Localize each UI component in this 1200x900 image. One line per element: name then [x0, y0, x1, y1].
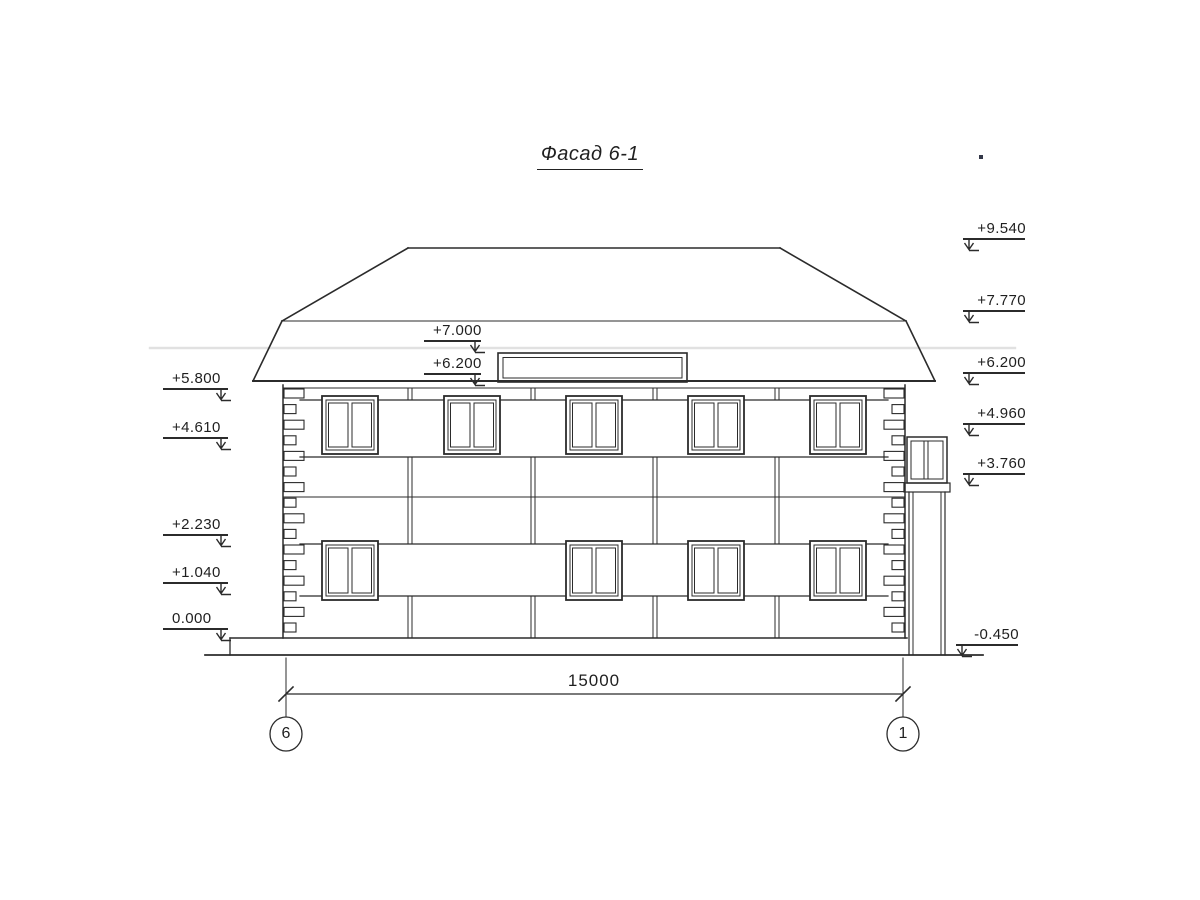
- level-arrow-icon: [961, 311, 981, 325]
- elevation-mark: +1.040: [163, 565, 229, 599]
- level-arrow-icon: [467, 341, 487, 355]
- quoin-brick: [284, 623, 296, 632]
- level-arrow-icon: [954, 645, 974, 659]
- level-arrow-icon: [961, 424, 981, 438]
- blueprint-page: Фасад 6-1 15000 6 1 +5.800 +4.610 +2.230…: [0, 0, 1200, 900]
- window: [322, 541, 378, 600]
- elevation-mark: +9.540: [963, 221, 1029, 255]
- quoin-brick: [284, 420, 304, 429]
- dimension-label: 15000: [544, 671, 644, 691]
- elevation-mark: +3.760: [963, 456, 1029, 490]
- attic-signboard: [498, 353, 687, 382]
- elevation-mark: +7.770: [963, 293, 1029, 327]
- elevation-mark: 0.000: [163, 611, 229, 645]
- quoin-brick: [284, 514, 304, 523]
- level-arrow-icon: [213, 535, 233, 549]
- level-arrow-icon: [213, 583, 233, 597]
- elevation-value: +9.540: [963, 221, 1029, 237]
- axis-label-1: 1: [887, 725, 919, 743]
- level-arrow-icon: [961, 474, 981, 488]
- elevation-mark: +6.200: [424, 356, 490, 390]
- quoin-brick: [892, 405, 904, 414]
- elevation-value: +7.000: [424, 323, 490, 339]
- quoin-brick: [884, 389, 904, 398]
- quoin-brick: [892, 467, 904, 476]
- lower-floor-windows: [322, 541, 866, 600]
- elevation-value: -0.450: [956, 627, 1022, 643]
- elevation-value: +3.760: [963, 456, 1029, 472]
- elevation-value: +7.770: [963, 293, 1029, 309]
- level-arrow-icon: [213, 438, 233, 452]
- quoin-brick: [284, 607, 304, 616]
- quoin-brick: [284, 451, 304, 460]
- quoin-brick: [284, 545, 304, 554]
- quoin-brick: [884, 607, 904, 616]
- roof-outline: [253, 248, 935, 381]
- elevation-mark: +2.230: [163, 517, 229, 551]
- level-arrow-icon: [961, 239, 981, 253]
- elevation-value: 0.000: [163, 611, 229, 627]
- elevation-mark: -0.450: [956, 627, 1022, 661]
- elevation-mark: +4.960: [963, 406, 1029, 440]
- elevation-mark: +6.200: [963, 355, 1029, 389]
- window: [810, 541, 866, 600]
- quoin-brick: [884, 483, 904, 492]
- level-arrow-icon: [961, 373, 981, 387]
- quoin-brick: [284, 483, 304, 492]
- quoin-brick: [284, 467, 296, 476]
- elevation-value: +4.960: [963, 406, 1029, 422]
- window: [444, 396, 500, 454]
- level-arrow-icon: [213, 389, 233, 403]
- quoin-brick: [284, 529, 296, 538]
- window: [688, 541, 744, 600]
- quoin-brick: [284, 592, 296, 601]
- quoin-brick: [884, 545, 904, 554]
- quoin-brick: [284, 436, 296, 445]
- upper-floor-windows: [322, 396, 866, 454]
- level-arrow-icon: [213, 629, 233, 643]
- quoin-brick: [884, 420, 904, 429]
- quoin-brick: [884, 576, 904, 585]
- elevation-mark: +4.610: [163, 420, 229, 454]
- quoin-brick: [284, 561, 296, 570]
- elevation-value: +1.040: [163, 565, 229, 581]
- elevation-value: +4.610: [163, 420, 229, 436]
- scan-artifact-dot: [979, 155, 983, 159]
- axis-label-6: 6: [270, 725, 302, 743]
- plinth-and-ground: [205, 638, 983, 655]
- quoin-brick: [884, 451, 904, 460]
- elevation-value: +2.230: [163, 517, 229, 533]
- elevation-mark: +5.800: [163, 371, 229, 405]
- elevation-mark: +7.000: [424, 323, 490, 357]
- quoin-brick: [892, 436, 904, 445]
- level-arrow-icon: [467, 374, 487, 388]
- elevation-value: +6.200: [963, 355, 1029, 371]
- quoin-brick: [284, 576, 304, 585]
- quoin-brick: [892, 561, 904, 570]
- quoin-brick: [884, 514, 904, 523]
- window: [322, 396, 378, 454]
- quoin-brick: [892, 623, 904, 632]
- chimney-stack: [904, 437, 950, 655]
- drawing-title: Фасад 6-1: [510, 143, 670, 170]
- window: [688, 396, 744, 454]
- elevation-value: +5.800: [163, 371, 229, 387]
- quoin-brick: [892, 498, 904, 507]
- elevation-value: +6.200: [424, 356, 490, 372]
- drawing-title-text: Фасад 6-1: [537, 143, 643, 170]
- quoin-brick: [284, 405, 296, 414]
- quoin-brick: [284, 498, 296, 507]
- window: [566, 396, 622, 454]
- quoin-brick: [892, 529, 904, 538]
- window: [810, 396, 866, 454]
- quoin-brick: [284, 389, 304, 398]
- window: [566, 541, 622, 600]
- quoin-brick: [892, 592, 904, 601]
